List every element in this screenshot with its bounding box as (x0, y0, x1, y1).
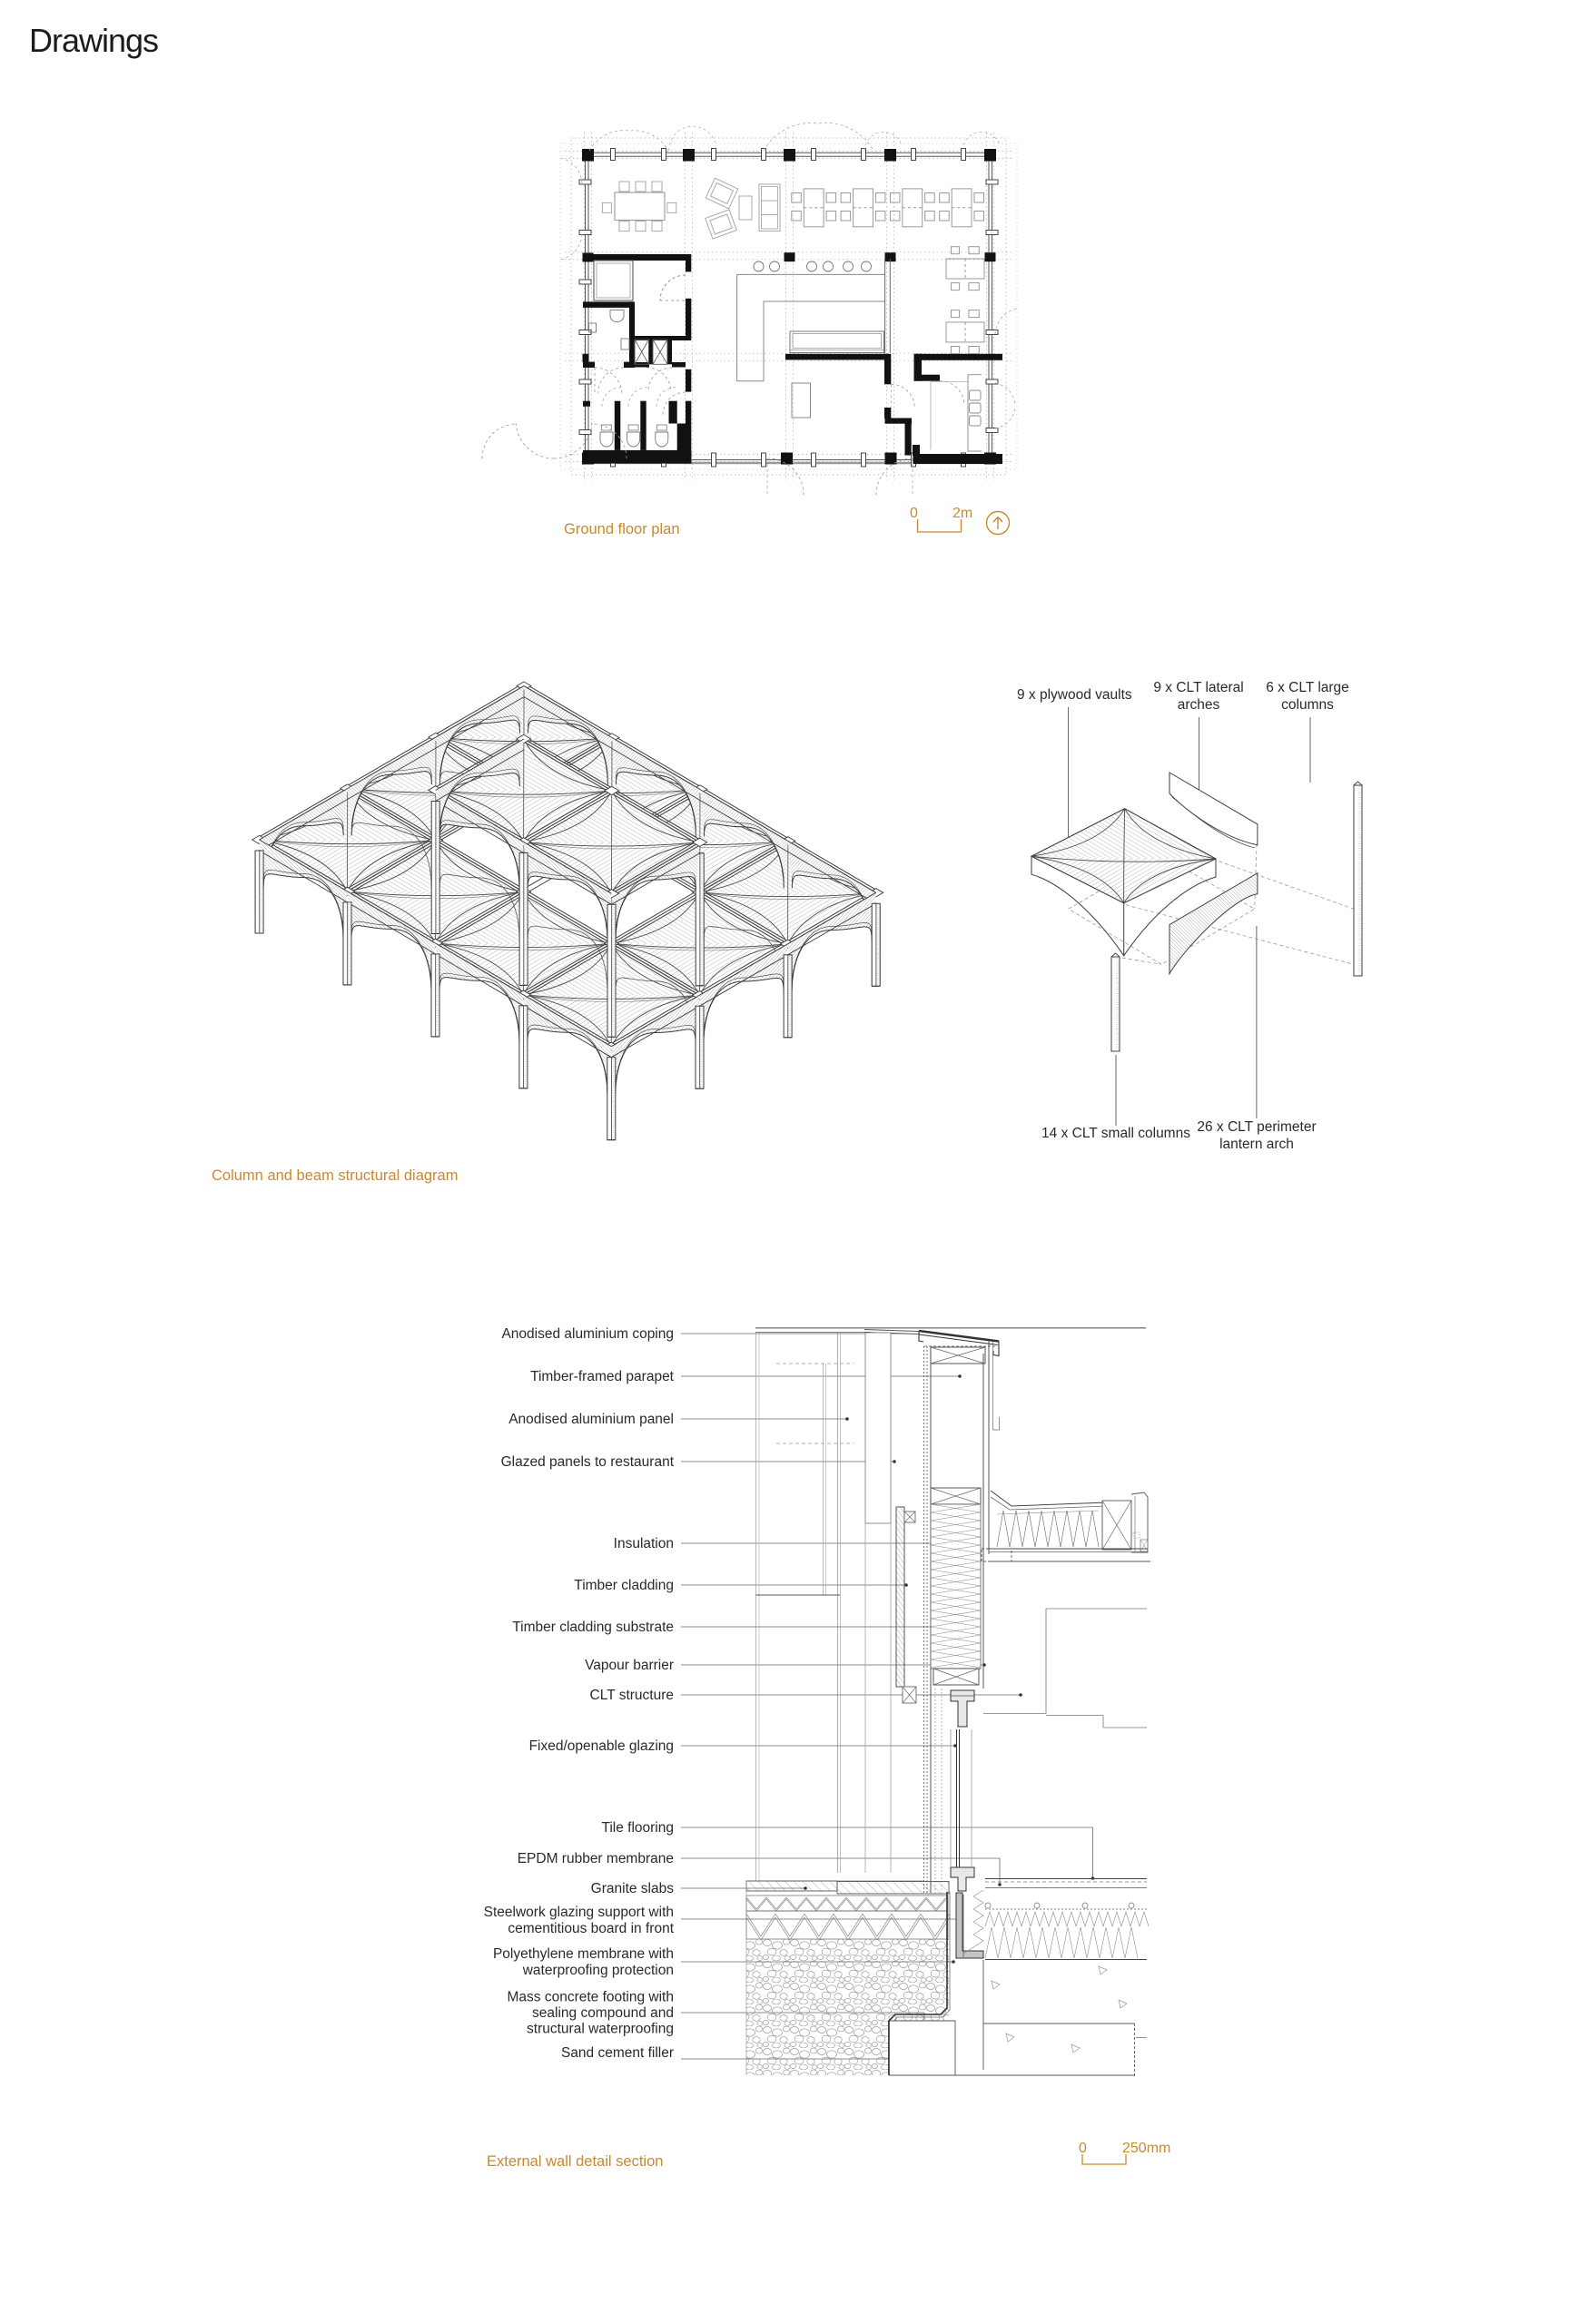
svg-text:cementitious board in front: cementitious board in front (508, 1921, 674, 1936)
svg-text:9 x plywood vaults: 9 x plywood vaults (1017, 687, 1132, 703)
svg-text:columns: columns (1281, 697, 1334, 713)
svg-text:Anodised aluminium coping: Anodised aluminium coping (501, 1326, 674, 1342)
svg-text:CLT structure: CLT structure (590, 1688, 674, 1703)
svg-text:EPDM rubber membrane: EPDM rubber membrane (518, 1851, 674, 1866)
svg-text:Sand cement filler: Sand cement filler (561, 2045, 674, 2061)
svg-text:Polyethylene membrane with: Polyethylene membrane with (493, 1946, 674, 1962)
svg-text:Vapour barrier: Vapour barrier (585, 1658, 674, 1673)
svg-text:0: 0 (910, 506, 918, 521)
svg-text:Steelwork glazing support with: Steelwork glazing support with (484, 1905, 674, 1920)
svg-text:structural waterproofing: structural waterproofing (527, 2022, 674, 2037)
svg-text:250mm: 250mm (1122, 2141, 1170, 2156)
svg-text:Ground floor plan: Ground floor plan (564, 521, 680, 537)
svg-text:Tile flooring: Tile flooring (601, 1820, 674, 1836)
svg-text:Insulation: Insulation (614, 1536, 674, 1551)
svg-text:Fixed/openable glazing: Fixed/openable glazing (529, 1738, 674, 1754)
svg-text:Glazed panels to restaurant: Glazed panels to restaurant (501, 1454, 675, 1470)
svg-text:0: 0 (1079, 2141, 1087, 2156)
svg-text:Timber cladding: Timber cladding (574, 1578, 674, 1593)
svg-text:Column and beam structural dia: Column and beam structural diagram (212, 1167, 458, 1184)
svg-text:External wall detail section: External wall detail section (487, 2153, 663, 2170)
svg-text:sealing compound and: sealing compound and (532, 2005, 674, 2021)
svg-text:2m: 2m (952, 506, 972, 521)
svg-text:Mass concrete footing with: Mass concrete footing with (507, 1990, 674, 2005)
svg-text:Timber cladding substrate: Timber cladding substrate (512, 1620, 674, 1635)
svg-text:9 x CLT lateral: 9 x CLT lateral (1153, 680, 1243, 695)
svg-text:Granite slabs: Granite slabs (591, 1881, 675, 1896)
svg-text:lantern arch: lantern arch (1219, 1137, 1294, 1152)
svg-text:waterproofing protection: waterproofing protection (522, 1963, 674, 1978)
svg-text:26 x CLT perimeter: 26 x CLT perimeter (1197, 1119, 1316, 1135)
svg-text:14 x CLT small columns: 14 x CLT small columns (1041, 1126, 1190, 1141)
svg-text:Timber-framed parapet: Timber-framed parapet (530, 1369, 675, 1384)
svg-text:arches: arches (1178, 697, 1220, 713)
svg-text:Anodised aluminium panel: Anodised aluminium panel (508, 1412, 674, 1427)
svg-text:6 x CLT large: 6 x CLT large (1266, 680, 1349, 695)
